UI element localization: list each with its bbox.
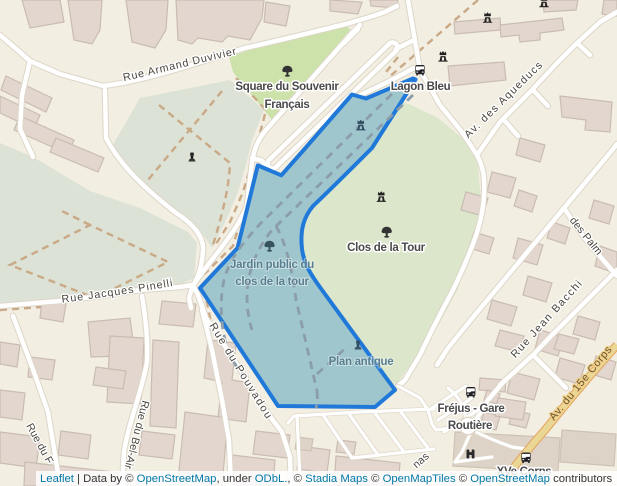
svg-text:Français: Français — [265, 99, 310, 111]
svg-text:Clos de la Tour: Clos de la Tour — [347, 242, 426, 254]
svg-text:Leaflet | Data by © OpenStreet: Leaflet | Data by © OpenStreetMap, under… — [40, 473, 612, 485]
svg-text:Jardin public du: Jardin public du — [230, 259, 314, 271]
svg-text:Lagon Bleu: Lagon Bleu — [391, 81, 451, 93]
svg-text:clos de la tour: clos de la tour — [235, 276, 309, 288]
svg-text:Square du Souvenir: Square du Souvenir — [235, 81, 339, 93]
svg-text:Routière: Routière — [448, 420, 492, 432]
svg-text:Fréjus - Gare: Fréjus - Gare — [437, 403, 504, 415]
svg-text:Plan antique: Plan antique — [329, 356, 394, 368]
